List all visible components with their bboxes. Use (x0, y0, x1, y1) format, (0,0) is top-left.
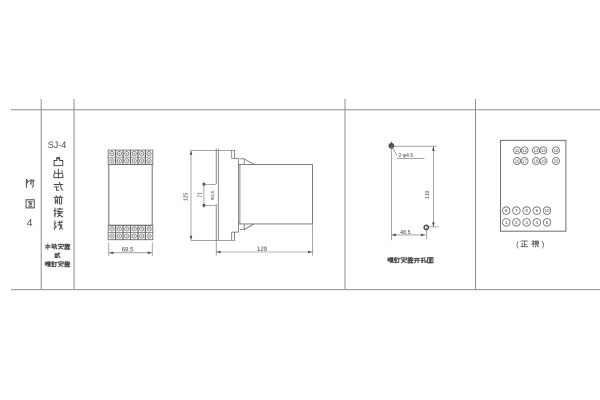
svg-text:110: 110 (425, 191, 431, 199)
svg-text:11: 11 (515, 148, 520, 153)
svg-text:8: 8 (525, 208, 528, 213)
svg-text:19: 19 (541, 159, 546, 164)
svg-text:SJ-4: SJ-4 (48, 140, 67, 150)
svg-text:2-φ4.5: 2-φ4.5 (398, 153, 413, 159)
svg-text:48.5: 48.5 (400, 230, 411, 236)
svg-text:9: 9 (536, 208, 539, 213)
svg-text:4: 4 (536, 220, 539, 225)
svg-text:14: 14 (541, 148, 546, 153)
svg-text:(: ( (516, 240, 519, 249)
svg-text:): ) (542, 240, 545, 249)
svg-text:12: 12 (522, 148, 527, 153)
svg-text:15: 15 (554, 148, 559, 153)
svg-text:18: 18 (534, 159, 539, 164)
svg-text:3: 3 (525, 220, 528, 225)
svg-text:16: 16 (515, 159, 520, 164)
svg-text:7: 7 (515, 208, 518, 213)
svg-text:1: 1 (505, 220, 508, 225)
svg-text:6: 6 (505, 208, 508, 213)
svg-text:20: 20 (554, 159, 559, 164)
svg-text:Φ4.8: Φ4.8 (210, 190, 215, 200)
svg-text:10: 10 (544, 208, 550, 213)
svg-text:71: 71 (197, 192, 203, 198)
svg-text:17: 17 (522, 159, 527, 164)
svg-text:13: 13 (534, 148, 539, 153)
svg-text:68.5: 68.5 (122, 247, 134, 253)
svg-text:2: 2 (515, 220, 518, 225)
svg-text:5: 5 (546, 220, 549, 225)
svg-text:4: 4 (27, 218, 33, 229)
svg-text:125: 125 (183, 193, 189, 202)
svg-text:129: 129 (257, 247, 268, 253)
